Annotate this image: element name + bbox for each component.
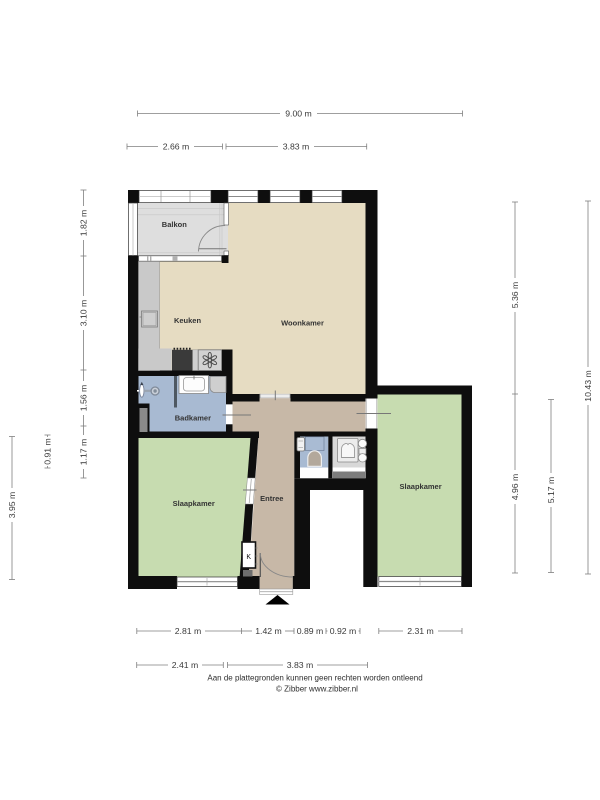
svg-text:Aan de plattegronden kunnen ge: Aan de plattegronden kunnen geen rechten… <box>207 674 422 683</box>
svg-text:Badkamer: Badkamer <box>175 414 211 423</box>
svg-text:5.36 m: 5.36 m <box>510 282 520 309</box>
svg-text:2.31 m: 2.31 m <box>407 626 434 636</box>
svg-text:1.42 m: 1.42 m <box>255 626 282 636</box>
svg-text:Keuken: Keuken <box>174 316 202 325</box>
svg-text:2.81 m: 2.81 m <box>175 626 202 636</box>
svg-text:3.10 m: 3.10 m <box>79 300 89 327</box>
svg-text:Balkon: Balkon <box>162 220 187 229</box>
svg-text:2.41 m: 2.41 m <box>172 660 199 670</box>
svg-text:0.89 m: 0.89 m <box>297 626 324 636</box>
svg-text:9.00 m: 9.00 m <box>285 109 312 119</box>
svg-text:3.83 m: 3.83 m <box>283 142 310 152</box>
svg-text:1.56 m: 1.56 m <box>79 385 89 412</box>
svg-text:Slaapkamer: Slaapkamer <box>173 499 215 508</box>
svg-text:3.95 m: 3.95 m <box>7 492 17 519</box>
svg-text:0.92 m: 0.92 m <box>330 626 357 636</box>
svg-text:1.82 m: 1.82 m <box>79 210 89 237</box>
svg-text:0.91 m: 0.91 m <box>43 438 53 465</box>
svg-text:Slaapkamer: Slaapkamer <box>400 482 442 491</box>
svg-text:10.43 m: 10.43 m <box>583 370 593 401</box>
svg-text:1.17 m: 1.17 m <box>79 439 89 466</box>
svg-text:5.17 m: 5.17 m <box>546 477 556 504</box>
svg-text:2.66 m: 2.66 m <box>163 142 190 152</box>
svg-text:Entree: Entree <box>260 494 283 503</box>
svg-text:K: K <box>246 554 251 561</box>
svg-text:3.83 m: 3.83 m <box>287 660 314 670</box>
svg-text:4.96 m: 4.96 m <box>510 474 520 501</box>
svg-text:Woonkamer: Woonkamer <box>281 319 324 328</box>
svg-text:© Zibber www.zibber.nl: © Zibber www.zibber.nl <box>276 685 358 694</box>
